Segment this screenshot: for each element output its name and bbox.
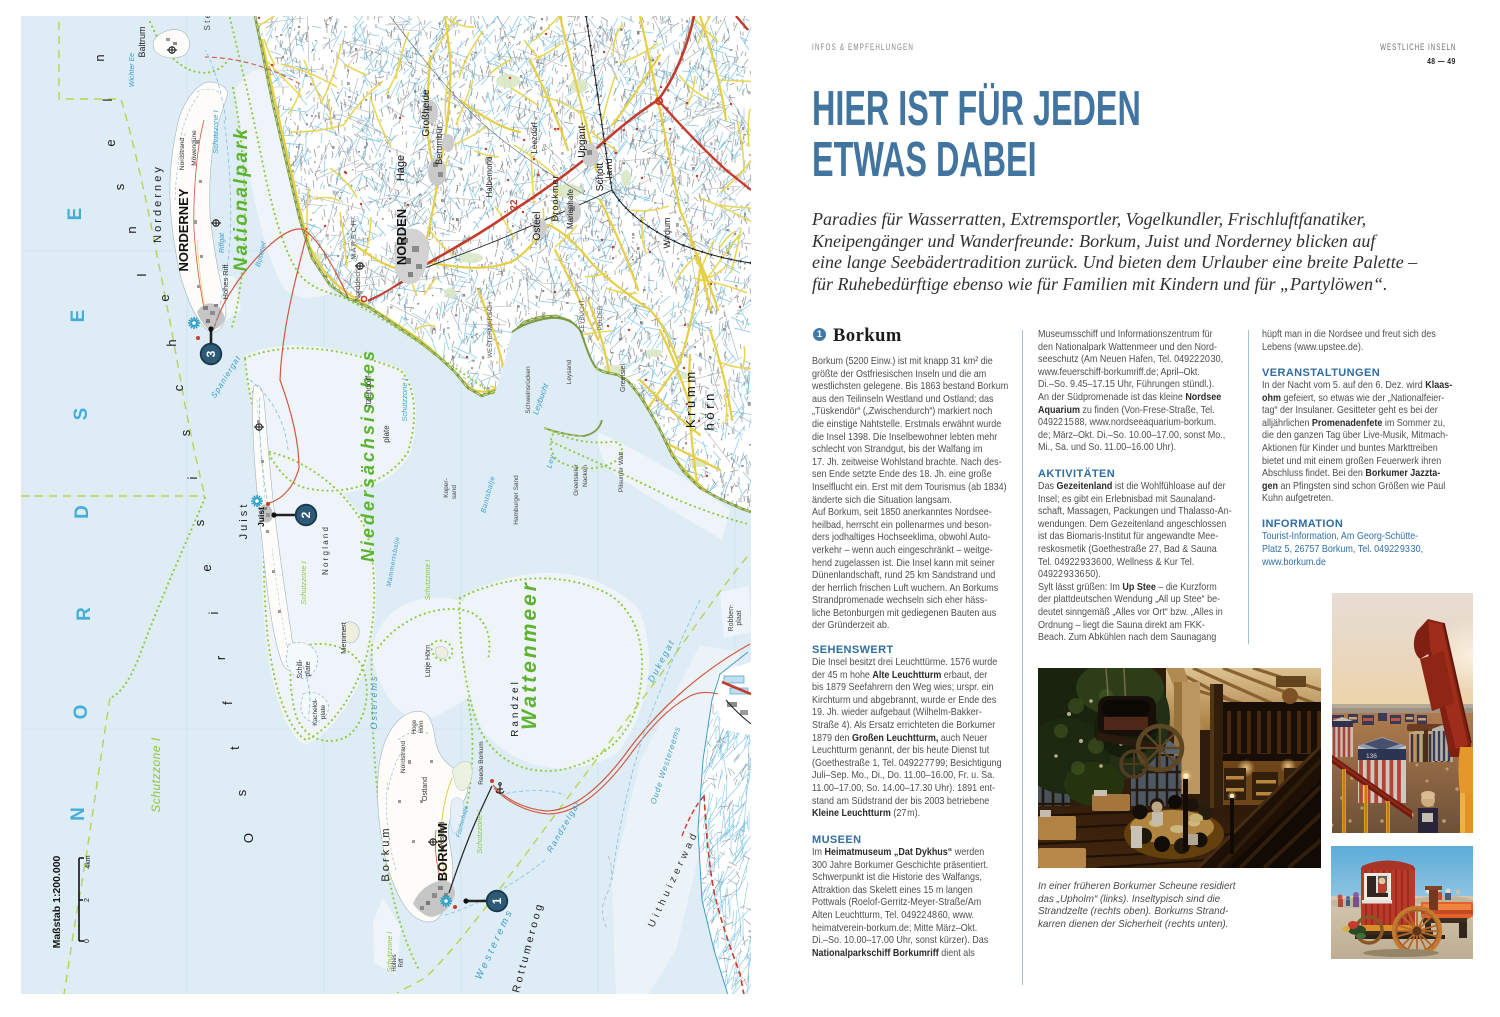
svg-text:land: land bbox=[604, 157, 614, 178]
svg-text:N: N bbox=[68, 807, 89, 821]
svg-text:Großheide: Großheide bbox=[421, 89, 432, 137]
svg-text:h: h bbox=[164, 339, 179, 346]
svg-text:Wichter Ee: Wichter Ee bbox=[129, 53, 136, 87]
svg-text:Nordstrand: Nordstrand bbox=[179, 138, 186, 171]
svg-text:D: D bbox=[72, 505, 93, 519]
svg-text:WESTERMARSCH: WESTERMARSCH bbox=[487, 302, 494, 358]
svg-text:Nordstrand: Nordstrand bbox=[400, 741, 407, 774]
svg-text:Hoge: Hoge bbox=[412, 719, 418, 734]
svg-text:Baltrum: Baltrum bbox=[137, 26, 147, 57]
svg-text:Hörn: Hörn bbox=[419, 720, 425, 733]
svg-text:Greetsieler: Greetsieler bbox=[573, 463, 580, 496]
svg-text:Lütje Hörn: Lütje Hörn bbox=[425, 645, 432, 677]
svg-text:Hohes: Hohes bbox=[392, 954, 398, 971]
svg-text:Leysand: Leysand bbox=[566, 359, 573, 384]
svg-text:Schutzzone I: Schutzzone I bbox=[211, 110, 220, 153]
svg-text:Pilsumer Watt: Pilsumer Watt bbox=[618, 452, 625, 492]
svg-text:Greetsiel: Greetsiel bbox=[620, 364, 627, 392]
svg-text:e: e bbox=[199, 564, 214, 571]
svg-text:Schutzzone I: Schutzzone I bbox=[400, 378, 409, 421]
svg-text:plate: plate bbox=[320, 705, 327, 719]
svg-text:Schutzzone I: Schutzzone I bbox=[299, 561, 308, 604]
svg-text:Koper-: Koper- bbox=[443, 478, 450, 498]
svg-text:i: i bbox=[206, 611, 221, 614]
svg-text:Robben-: Robben- bbox=[728, 604, 735, 632]
svg-text:Hohes Riff: Hohes Riff bbox=[221, 264, 230, 300]
svg-text:E: E bbox=[68, 310, 89, 323]
svg-text:S t e i n g a t: S t e i n g a t bbox=[203, 16, 212, 30]
svg-text:l: l bbox=[100, 98, 115, 101]
svg-text:e: e bbox=[103, 139, 118, 146]
svg-text:plate: plate bbox=[305, 661, 312, 676]
svg-text:Reede Borkum: Reede Borkum bbox=[478, 741, 485, 784]
svg-text:POLDER: POLDER bbox=[598, 305, 604, 330]
svg-text:O: O bbox=[241, 833, 256, 843]
svg-text:J u i s t: J u i s t bbox=[238, 505, 250, 540]
svg-text:plate: plate bbox=[382, 425, 391, 443]
svg-text:4km: 4km bbox=[85, 855, 92, 868]
svg-text:Schill-: Schill- bbox=[297, 659, 304, 679]
svg-text:Itzendorf-: Itzendorf- bbox=[364, 373, 373, 407]
svg-text:136: 136 bbox=[1366, 753, 1377, 760]
svg-text:n: n bbox=[124, 226, 139, 233]
svg-text:I: I bbox=[134, 273, 149, 277]
svg-text:Schutzzone I: Schutzzone I bbox=[149, 737, 163, 813]
svg-text:0: 0 bbox=[84, 939, 91, 943]
svg-text:Riff: Riff bbox=[399, 958, 405, 967]
svg-text:Brookmer: Brookmer bbox=[550, 174, 560, 221]
svg-text:Osterems: Osterems bbox=[369, 674, 379, 729]
svg-text:Schweinsrücken: Schweinsrücken bbox=[525, 366, 532, 414]
svg-text:NORDEN: NORDEN bbox=[394, 209, 409, 265]
svg-text:Leezdorf: Leezdorf bbox=[530, 122, 539, 154]
svg-text:E: E bbox=[65, 208, 86, 221]
svg-text:Upgant-: Upgant- bbox=[577, 122, 588, 158]
svg-text:s: s bbox=[192, 519, 207, 526]
svg-text:c: c bbox=[171, 384, 186, 391]
svg-text:Maßstab 1:200.000: Maßstab 1:200.000 bbox=[51, 855, 63, 948]
svg-text:n: n bbox=[92, 54, 107, 61]
svg-text:Randzel: Randzel bbox=[510, 679, 521, 737]
svg-text:B o r k u m: B o r k u m bbox=[380, 828, 392, 881]
svg-text:Nacken: Nacken bbox=[582, 465, 589, 487]
svg-text:1: 1 bbox=[490, 897, 504, 904]
svg-text:2: 2 bbox=[84, 898, 91, 902]
svg-text:Schutzzone I: Schutzzone I bbox=[475, 810, 484, 853]
svg-text:s: s bbox=[178, 429, 193, 436]
svg-text:Ostland: Ostland bbox=[422, 777, 429, 801]
svg-text:Marienhafe: Marienhafe bbox=[566, 188, 575, 229]
svg-text:Juist: Juist bbox=[256, 507, 266, 527]
svg-text:M A R S C H: M A R S C H bbox=[351, 220, 358, 259]
svg-text:S: S bbox=[71, 408, 92, 421]
svg-text:Hamburger Sand: Hamburger Sand bbox=[513, 475, 520, 525]
svg-text:LEYBUCHT-: LEYBUCHT- bbox=[580, 298, 586, 332]
svg-text:2: 2 bbox=[299, 511, 313, 518]
svg-text:Nationalpark: Nationalpark bbox=[231, 126, 252, 271]
svg-text:Halbemond: Halbemond bbox=[485, 157, 494, 198]
svg-text:Wattenmeer: Wattenmeer bbox=[518, 580, 541, 730]
svg-text:N o r d e r n e y: N o r d e r n e y bbox=[152, 167, 164, 243]
svg-text:i: i bbox=[185, 476, 200, 479]
svg-text:Westland: Westland bbox=[439, 821, 446, 850]
svg-text:NORDERNEY: NORDERNEY bbox=[176, 188, 191, 271]
svg-text:Schutzzone I: Schutzzone I bbox=[425, 560, 432, 601]
svg-text:Hage: Hage bbox=[395, 155, 407, 181]
svg-text:3: 3 bbox=[204, 350, 218, 357]
svg-text:O: O bbox=[71, 705, 92, 720]
svg-text:t: t bbox=[227, 746, 242, 750]
svg-text:22: 22 bbox=[509, 199, 520, 211]
svg-text:h ö r n: h ö r n bbox=[702, 394, 717, 431]
svg-text:Möwendüne: Möwendüne bbox=[191, 130, 198, 166]
svg-text:Osteel: Osteel bbox=[532, 212, 543, 241]
svg-text:R: R bbox=[74, 607, 95, 621]
svg-text:Memmert: Memmert bbox=[339, 621, 348, 654]
svg-text:Kachelot-: Kachelot- bbox=[312, 698, 319, 725]
svg-text:sand: sand bbox=[451, 485, 458, 499]
svg-text:K r u m m: K r u m m bbox=[683, 372, 698, 428]
svg-text:f: f bbox=[220, 701, 235, 705]
svg-text:Wirdum: Wirdum bbox=[662, 218, 672, 249]
svg-text:s: s bbox=[234, 789, 249, 796]
svg-text:Riffgat: Riffgat bbox=[219, 232, 226, 253]
svg-text:s: s bbox=[112, 183, 127, 190]
svg-text:r: r bbox=[213, 655, 228, 660]
svg-text:N o r g l a n d: N o r g l a n d bbox=[321, 527, 330, 575]
svg-text:Berumbur: Berumbur bbox=[434, 125, 444, 165]
svg-text:plaat: plaat bbox=[736, 610, 743, 625]
svg-text:Norddeich: Norddeich bbox=[355, 269, 362, 301]
svg-text:e: e bbox=[157, 294, 172, 301]
